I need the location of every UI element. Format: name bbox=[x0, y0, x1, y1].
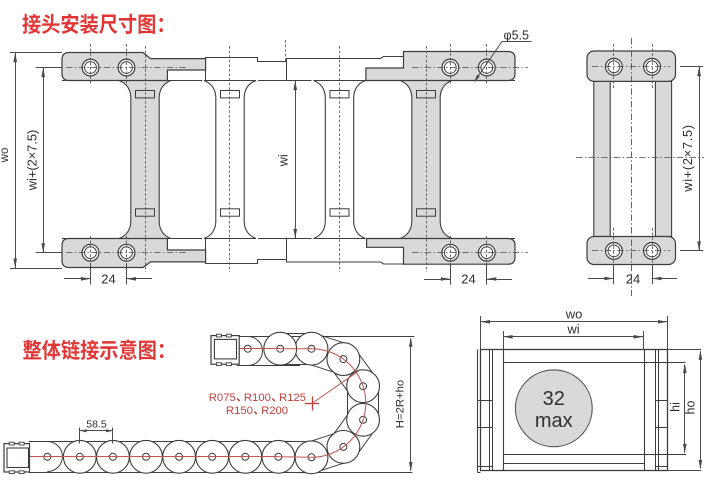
svg-text:R125: R125 bbox=[279, 392, 306, 404]
svg-text:hi: hi bbox=[669, 402, 683, 412]
svg-text:wi: wi bbox=[566, 322, 579, 337]
svg-text:R200: R200 bbox=[261, 405, 288, 417]
svg-text:max: max bbox=[535, 410, 573, 432]
svg-text:ho: ho bbox=[684, 401, 698, 415]
svg-text:R150: R150 bbox=[226, 405, 253, 417]
svg-text:R100: R100 bbox=[244, 392, 271, 404]
svg-text:32: 32 bbox=[543, 388, 565, 410]
svg-text:H=2R+ho: H=2R+ho bbox=[395, 380, 407, 428]
svg-text:wi+(2×7.5): wi+(2×7.5) bbox=[680, 124, 695, 192]
svg-text:wo: wo bbox=[0, 148, 11, 164]
svg-text:φ5.5: φ5.5 bbox=[504, 28, 530, 42]
svg-text:wi: wi bbox=[276, 154, 291, 167]
svg-text:wo: wo bbox=[565, 307, 583, 322]
svg-text:58.5: 58.5 bbox=[86, 418, 107, 430]
svg-text:24: 24 bbox=[626, 271, 640, 286]
svg-text:24: 24 bbox=[101, 272, 115, 287]
svg-text:R075: R075 bbox=[209, 392, 236, 404]
svg-text:24: 24 bbox=[461, 272, 475, 287]
svg-text:wi+(2×7.5): wi+(2×7.5) bbox=[25, 130, 40, 191]
